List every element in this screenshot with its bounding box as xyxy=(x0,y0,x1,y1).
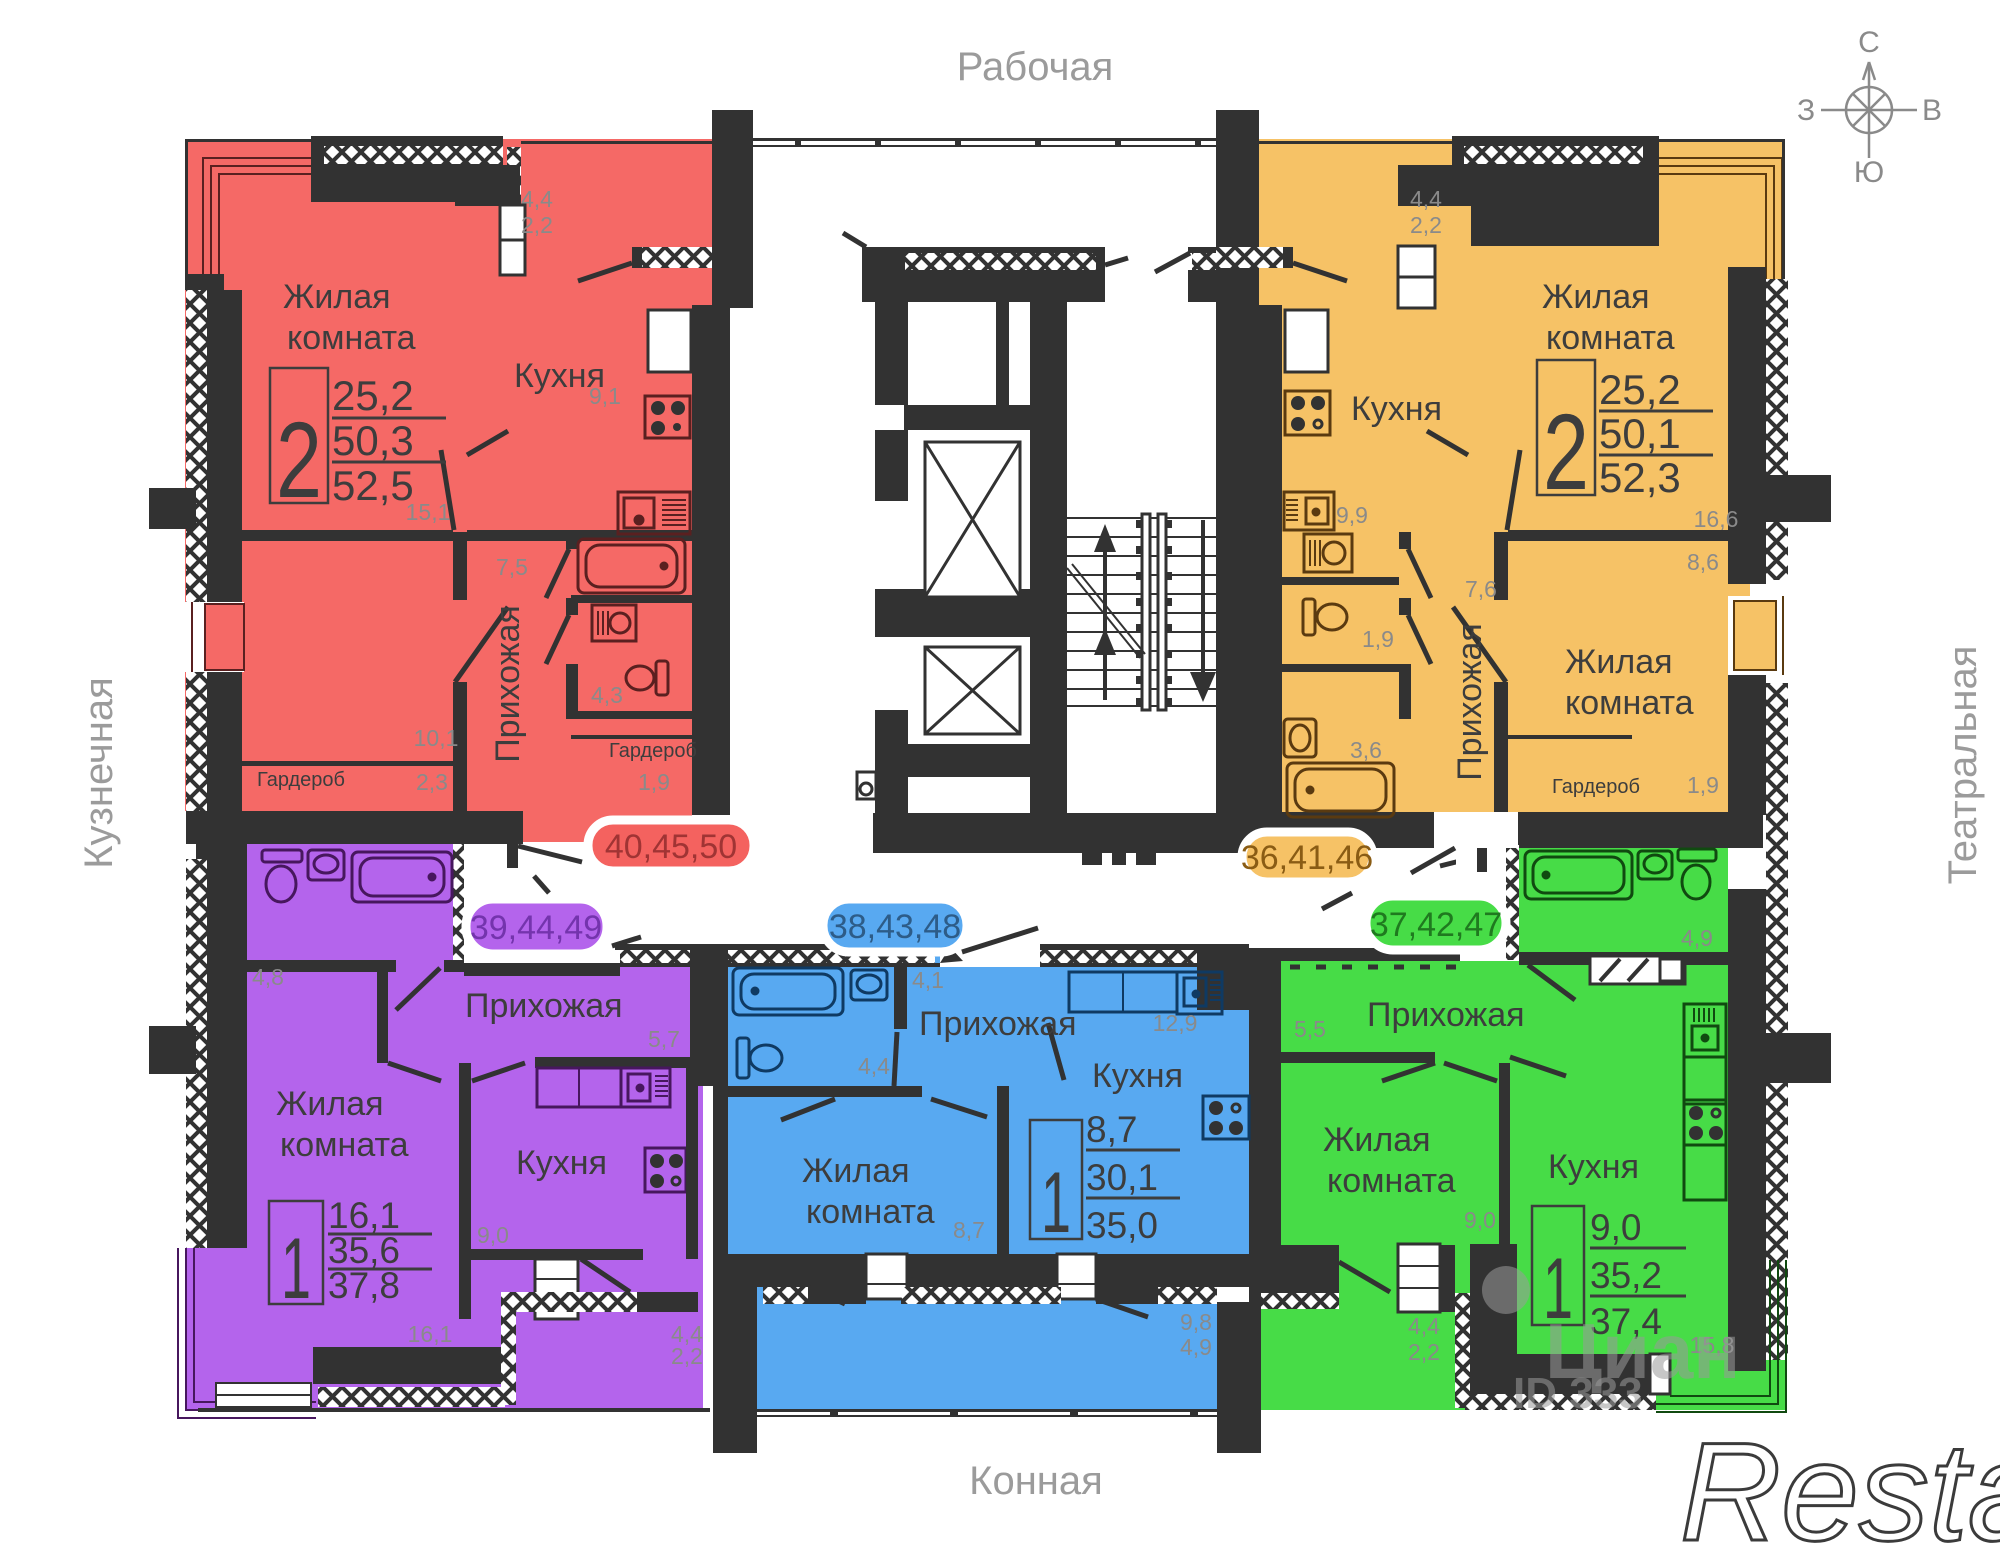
svg-text:Рабочая: Рабочая xyxy=(957,45,1114,89)
svg-text:Кухня: Кухня xyxy=(1092,1057,1183,1095)
svg-text:4,4: 4,4 xyxy=(1410,186,1442,212)
svg-text:37,8: 37,8 xyxy=(328,1265,400,1306)
svg-text:комната: комната xyxy=(1546,319,1675,357)
svg-text:52,3: 52,3 xyxy=(1599,454,1681,501)
svg-text:9,8: 9,8 xyxy=(1180,1309,1212,1335)
svg-text:Жилая: Жилая xyxy=(1542,278,1650,316)
svg-text:комната: комната xyxy=(280,1126,409,1164)
svg-text:52,5: 52,5 xyxy=(332,462,414,509)
svg-text:7,6: 7,6 xyxy=(1465,576,1497,602)
svg-text:5,5: 5,5 xyxy=(1294,1016,1326,1042)
svg-text:С: С xyxy=(1858,26,1880,59)
svg-text:Прихожая: Прихожая xyxy=(489,605,527,763)
svg-text:Прихожая: Прихожая xyxy=(1367,996,1525,1034)
svg-text:7,5: 7,5 xyxy=(496,554,528,580)
svg-text:16,1: 16,1 xyxy=(408,1321,453,1347)
svg-text:12,9: 12,9 xyxy=(1153,1010,1198,1036)
svg-text:10,1: 10,1 xyxy=(414,725,459,751)
svg-text:35,2: 35,2 xyxy=(1590,1255,1662,1296)
svg-text:Жилая: Жилая xyxy=(276,1085,384,1123)
svg-text:Кузнечная: Кузнечная xyxy=(77,677,121,868)
svg-text:4,4: 4,4 xyxy=(521,186,553,212)
svg-text:З: З xyxy=(1797,94,1815,127)
svg-text:36,41,46: 36,41,46 xyxy=(1241,839,1373,877)
svg-text:Гардероб: Гардероб xyxy=(1552,776,1640,798)
svg-text:1: 1 xyxy=(1041,1155,1071,1251)
svg-text:4,3: 4,3 xyxy=(591,682,623,708)
svg-text:ID 333: ID 333 xyxy=(1513,1369,1643,1418)
svg-text:Прихожая: Прихожая xyxy=(919,1005,1077,1043)
svg-text:1,9: 1,9 xyxy=(1362,626,1394,652)
svg-text:Ю: Ю xyxy=(1854,156,1884,189)
svg-text:Театральная: Театральная xyxy=(1941,646,1985,885)
svg-text:комната: комната xyxy=(1565,684,1694,722)
svg-text:2,2: 2,2 xyxy=(671,1343,703,1369)
svg-text:Прихожая: Прихожая xyxy=(1451,623,1489,781)
svg-text:4,9: 4,9 xyxy=(1180,1334,1212,1360)
svg-text:Жилая: Жилая xyxy=(1565,643,1673,681)
svg-text:9,9: 9,9 xyxy=(1336,502,1368,528)
svg-text:25,2: 25,2 xyxy=(332,372,414,419)
svg-text:4,9: 4,9 xyxy=(1681,925,1713,951)
svg-text:25,2: 25,2 xyxy=(1599,366,1681,413)
svg-text:Жилая: Жилая xyxy=(1323,1121,1431,1159)
svg-text:8,6: 8,6 xyxy=(1687,549,1719,575)
svg-text:2,2: 2,2 xyxy=(1408,1339,1440,1365)
svg-text:2,3: 2,3 xyxy=(416,769,448,795)
svg-text:2: 2 xyxy=(276,399,322,520)
svg-text:комната: комната xyxy=(287,319,416,357)
svg-text:8,7: 8,7 xyxy=(953,1217,985,1243)
svg-text:9,0: 9,0 xyxy=(477,1222,509,1248)
svg-text:9,0: 9,0 xyxy=(1464,1207,1496,1233)
svg-text:4,4: 4,4 xyxy=(1408,1313,1440,1339)
svg-text:Кухня: Кухня xyxy=(1548,1148,1639,1186)
svg-text:8,7: 8,7 xyxy=(1086,1109,1137,1150)
svg-text:комната: комната xyxy=(806,1193,935,1231)
svg-text:2: 2 xyxy=(1543,391,1589,512)
svg-text:35,0: 35,0 xyxy=(1086,1205,1158,1246)
svg-text:1: 1 xyxy=(281,1221,311,1317)
svg-text:50,3: 50,3 xyxy=(332,417,414,464)
svg-text:5,7: 5,7 xyxy=(648,1026,680,1052)
svg-text:Конная: Конная xyxy=(969,1459,1103,1503)
svg-text:Прихожая: Прихожая xyxy=(465,987,623,1025)
svg-text:39,44,49: 39,44,49 xyxy=(470,909,602,947)
svg-text:40,45,50: 40,45,50 xyxy=(605,828,737,866)
svg-text:1,9: 1,9 xyxy=(1687,772,1719,798)
svg-text:15,1: 15,1 xyxy=(406,499,451,525)
svg-text:38,43,48: 38,43,48 xyxy=(829,908,961,946)
svg-text:4,8: 4,8 xyxy=(252,964,284,990)
svg-text:Гардероб: Гардероб xyxy=(257,769,345,791)
svg-text:30,1: 30,1 xyxy=(1086,1157,1158,1198)
svg-text:Кухня: Кухня xyxy=(516,1144,607,1182)
svg-text:комната: комната xyxy=(1327,1162,1456,1200)
svg-text:37,42,47: 37,42,47 xyxy=(1370,906,1502,944)
svg-text:Жилая: Жилая xyxy=(283,278,391,316)
svg-text:16,6: 16,6 xyxy=(1694,506,1739,532)
svg-text:Жилая: Жилая xyxy=(802,1152,910,1190)
svg-text:9,1: 9,1 xyxy=(589,383,621,409)
svg-text:3,6: 3,6 xyxy=(1350,737,1382,763)
svg-text:Кухня: Кухня xyxy=(1351,390,1442,428)
svg-text:4,1: 4,1 xyxy=(912,967,944,993)
svg-text:В: В xyxy=(1922,94,1942,127)
svg-text:4,4: 4,4 xyxy=(858,1053,890,1079)
svg-text:50,1: 50,1 xyxy=(1599,410,1681,457)
svg-text:Гардероб: Гардероб xyxy=(609,740,697,762)
svg-text:1,9: 1,9 xyxy=(638,769,670,795)
svg-text:2,2: 2,2 xyxy=(1410,212,1442,238)
svg-text:2,2: 2,2 xyxy=(521,212,553,238)
svg-text:Restate: Restate xyxy=(1680,1413,2000,1556)
svg-text:9,0: 9,0 xyxy=(1590,1207,1641,1248)
